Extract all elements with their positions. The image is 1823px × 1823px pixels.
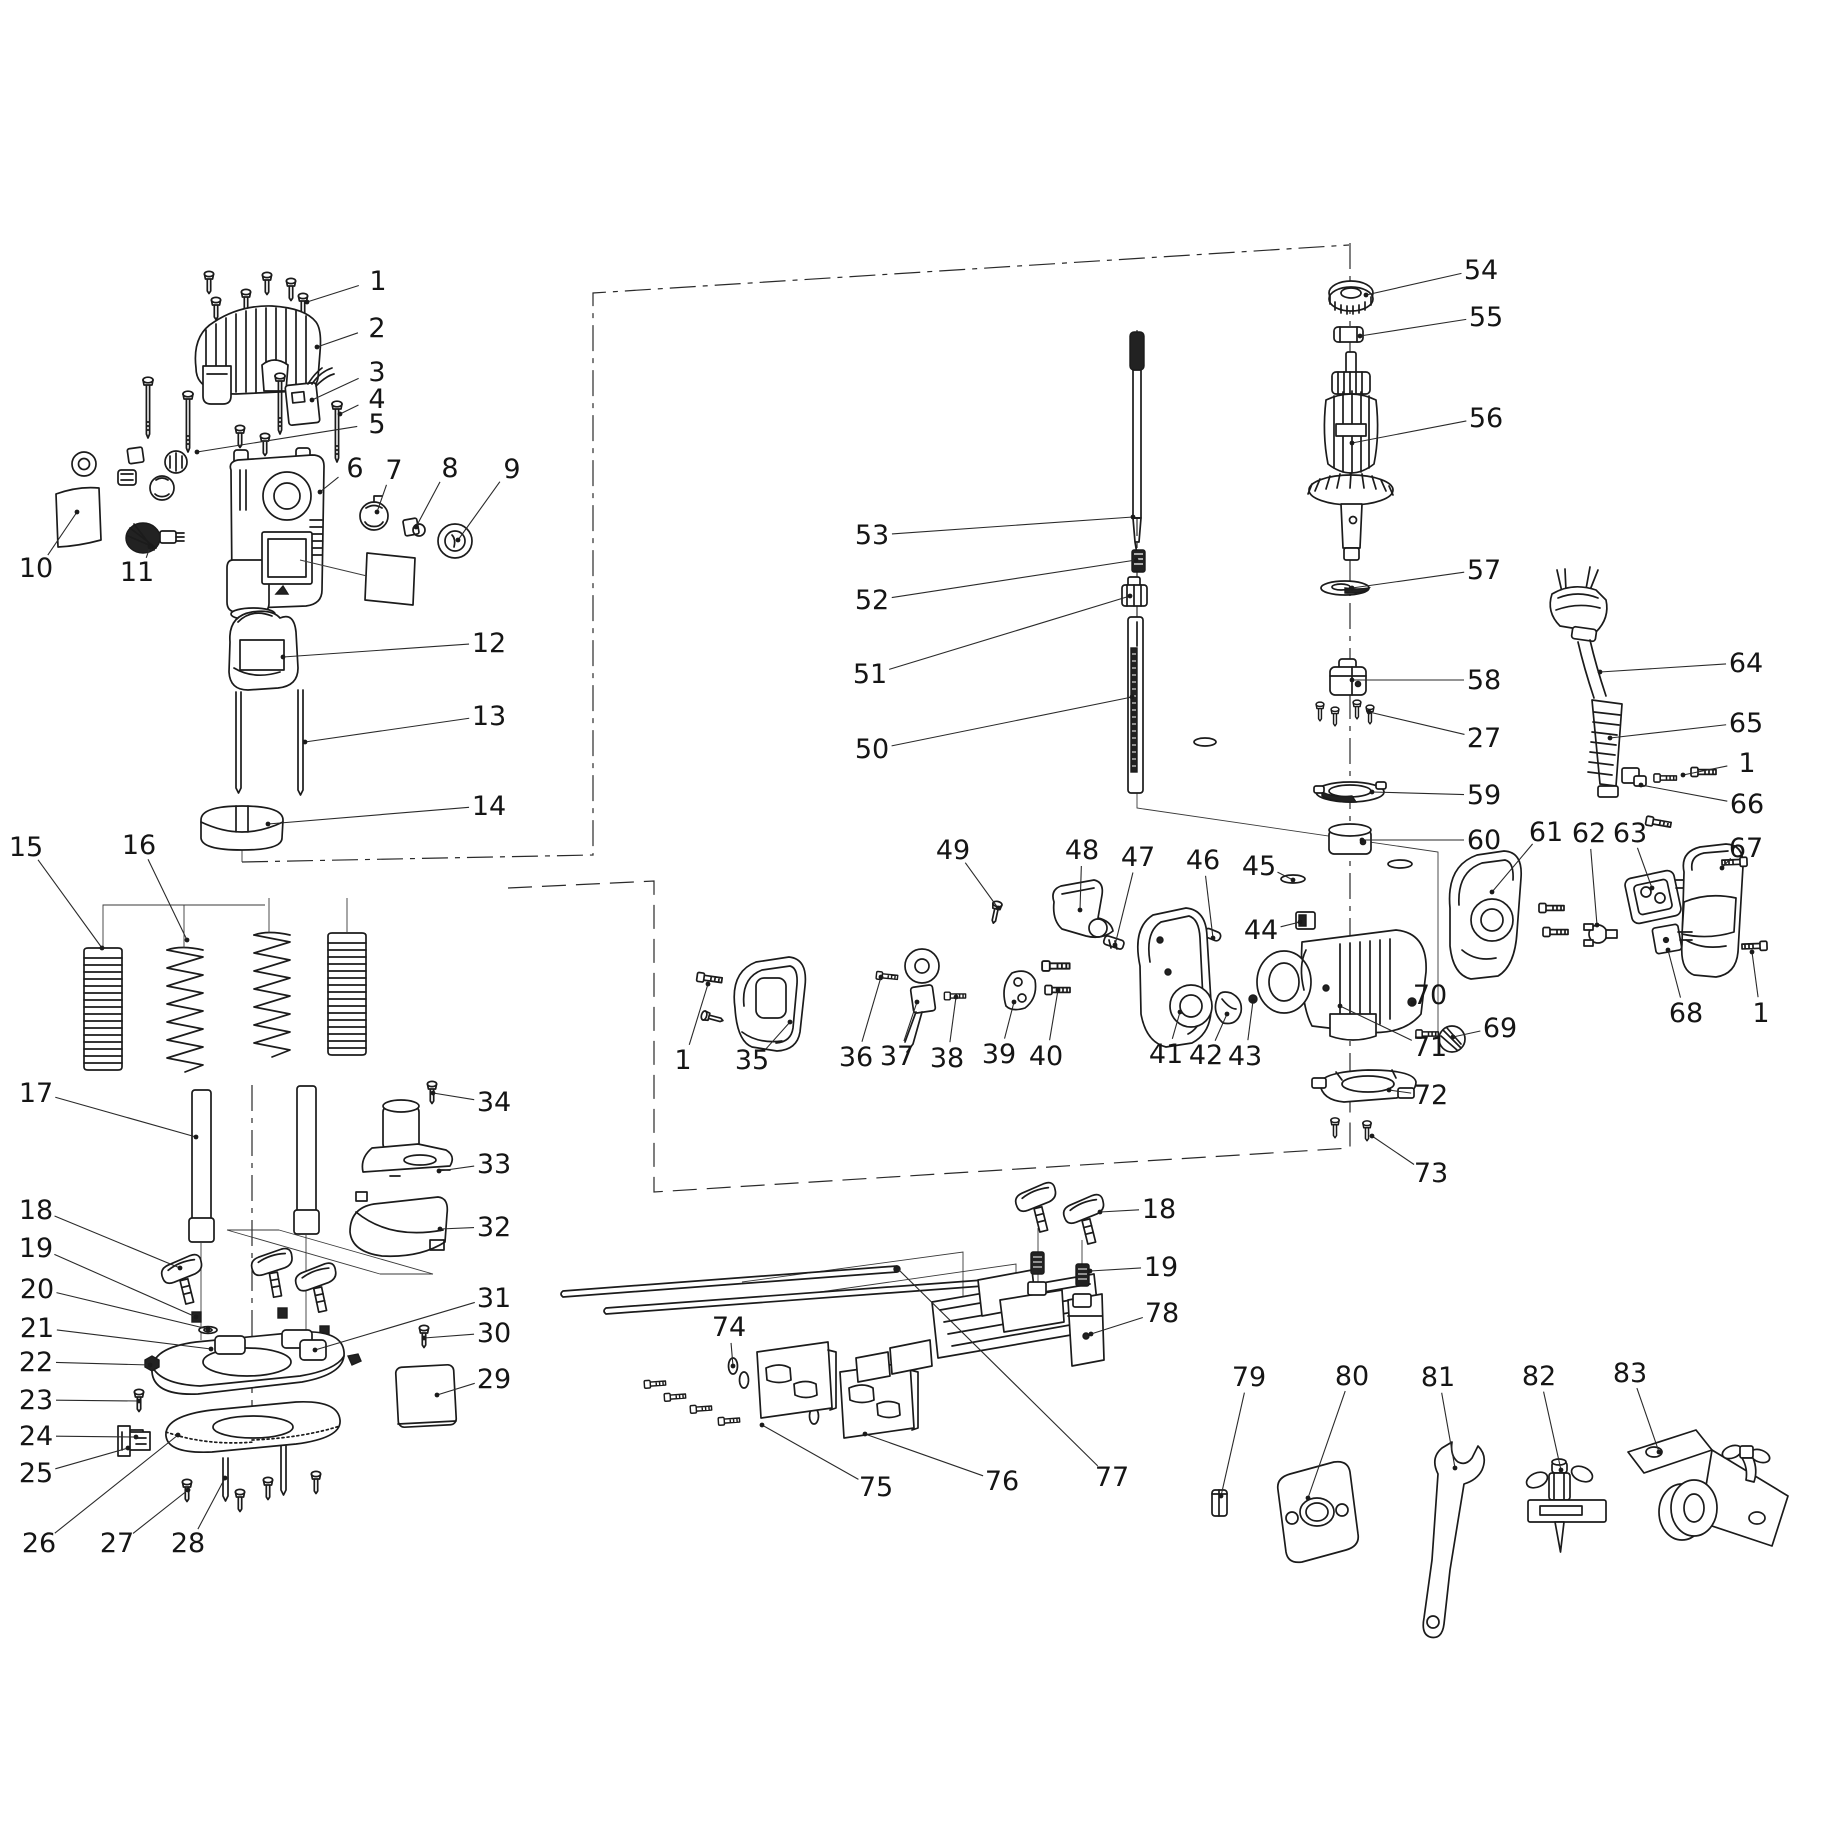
leader-dot: [338, 412, 343, 417]
part-17-columns: [189, 1086, 319, 1340]
leader-line: [197, 426, 357, 452]
leader-dot: [206, 1327, 211, 1332]
callout-60: 60: [1360, 825, 1502, 856]
part-number: 16: [122, 830, 156, 861]
callout-40: 40: [1029, 988, 1063, 1072]
leader-line: [340, 405, 358, 414]
leader-line: [315, 1302, 475, 1350]
leader-dot: [954, 995, 959, 1000]
callout-55: 55: [1358, 302, 1504, 338]
leader-line: [889, 596, 1130, 669]
part-number: 79: [1232, 1362, 1266, 1393]
leader-dot: [788, 1020, 793, 1025]
leader-line: [55, 1216, 180, 1268]
leader-dot: [760, 1423, 765, 1428]
part-83-roller-guide: [1628, 1430, 1788, 1546]
leader-line: [1369, 712, 1464, 734]
part-54-bearing: [1329, 281, 1373, 314]
leader-line: [1050, 990, 1058, 1040]
part-number: 24: [19, 1421, 53, 1452]
part-50-depth-scale: [1128, 617, 1143, 793]
leader-line: [424, 1334, 474, 1338]
leader-line: [1544, 1392, 1561, 1470]
callout-25: 25: [19, 1446, 131, 1489]
part-number: 17: [19, 1078, 53, 1109]
leader-dot: [75, 510, 80, 515]
part-number: 73: [1414, 1158, 1448, 1189]
leader-line: [307, 286, 359, 302]
part-number: 78: [1145, 1298, 1179, 1329]
part-63-switch: [1624, 869, 1688, 924]
leader-line: [458, 482, 500, 540]
part-number: 8: [441, 453, 458, 484]
part-82-circle-guide-pin: [1524, 1459, 1606, 1552]
leader-line: [305, 718, 469, 742]
leader-line: [862, 977, 881, 1042]
callout-32: 32: [438, 1212, 512, 1243]
callout-50: 50: [855, 695, 1135, 765]
leader-dot: [209, 1347, 214, 1352]
leader-line: [892, 697, 1132, 746]
leader-line: [1668, 950, 1681, 998]
leader-line: [55, 1448, 128, 1469]
leader-dot: [1113, 943, 1118, 948]
leader-dot: [310, 398, 315, 403]
leader-dot: [1650, 886, 1655, 891]
leader-dot: [1134, 558, 1139, 563]
leader-line: [1248, 1001, 1253, 1040]
leader-dot: [178, 1266, 183, 1271]
part-number: 33: [477, 1149, 511, 1180]
callout-34: 34: [431, 1087, 512, 1118]
leader-line: [1372, 1136, 1414, 1164]
leader-line: [283, 644, 469, 657]
washer-small-top: [1194, 738, 1216, 746]
callout-82: 82: [1522, 1361, 1564, 1472]
part-number: 58: [1467, 665, 1501, 696]
callout-73: 73: [1370, 1134, 1449, 1189]
leader-dot: [1559, 1468, 1564, 1473]
leader-dot: [435, 1393, 440, 1398]
leader-dot: [1681, 773, 1686, 778]
part-number: 57: [1467, 555, 1501, 586]
leader-dot: [1298, 920, 1303, 925]
part-75-clamp-plate: [757, 1342, 836, 1418]
leader-dot: [148, 545, 153, 550]
leader-line: [56, 1400, 139, 1401]
part-number: 71: [1413, 1032, 1447, 1063]
leader-dot: [305, 300, 310, 305]
leader-line: [1115, 872, 1133, 945]
callout-36: 36: [839, 975, 884, 1073]
leader-dot: [456, 538, 461, 543]
construction-line: [508, 881, 1350, 1192]
leader-dot: [437, 1169, 442, 1174]
leader-dot: [1225, 1012, 1230, 1017]
leader-line: [892, 560, 1136, 598]
callout-57: 57: [1350, 555, 1502, 590]
leader-dot: [318, 490, 323, 495]
part-number: 35: [735, 1045, 769, 1076]
part-number: 23: [19, 1385, 53, 1416]
part-number: 53: [855, 520, 889, 551]
leader-dot: [863, 1432, 868, 1437]
leader-dot: [1306, 1496, 1311, 1501]
leader-dot: [1350, 678, 1355, 683]
part-26-sub-base: [166, 1402, 340, 1452]
leader-line: [1752, 952, 1758, 997]
leader-dot: [1720, 866, 1725, 871]
part-7-bearing-cap: [360, 496, 388, 530]
part-number: 30: [477, 1318, 511, 1349]
leader-line: [1352, 572, 1464, 588]
leader-dot: [706, 982, 711, 987]
part-number: 44: [1244, 915, 1278, 946]
part-number: 54: [1464, 255, 1498, 286]
part-number: 18: [1142, 1194, 1176, 1225]
part-number: 47: [1121, 842, 1155, 873]
callout-70: 70: [1411, 980, 1448, 1011]
callout-27: 27: [1367, 710, 1502, 754]
part-1-screws-left: [696, 972, 724, 1025]
part-number: 80: [1335, 1361, 1369, 1392]
leader-dot: [100, 946, 105, 951]
leader-dot: [1338, 1004, 1343, 1009]
part-73-screws: [1331, 1118, 1371, 1141]
construction-line: [242, 245, 1349, 862]
callout-44: 44: [1244, 915, 1303, 946]
leader-line: [1372, 792, 1464, 795]
leader-dot: [195, 450, 200, 455]
diagram-page: 1234567891011121314151617181920212223242…: [0, 0, 1823, 1823]
leader-line: [55, 1435, 178, 1533]
part-33-dust-hood: [362, 1100, 452, 1176]
callout-14: 14: [266, 791, 507, 826]
part-81-wrench: [1423, 1442, 1484, 1637]
part-56-armature: [1308, 352, 1393, 560]
callout-39: 39: [982, 1000, 1017, 1070]
callout-53: 53: [855, 515, 1136, 551]
part-number: 13: [472, 701, 506, 732]
callout-83: 83: [1613, 1358, 1662, 1454]
part-number: 61: [1529, 817, 1563, 848]
leader-line: [1637, 1388, 1659, 1452]
part-number: 70: [1413, 980, 1447, 1011]
leader-line: [1600, 664, 1726, 672]
callout-12: 12: [281, 628, 507, 659]
callout-54: 54: [1364, 255, 1499, 297]
leader-dot: [1657, 1450, 1662, 1455]
part-number: 51: [853, 659, 887, 690]
part-number: 74: [712, 1312, 746, 1343]
leader-dot: [134, 1435, 139, 1440]
leader-dot: [731, 1364, 736, 1369]
leader-dot: [1130, 695, 1135, 700]
part-number: 46: [1186, 845, 1220, 876]
callout-1: 1: [1750, 950, 1770, 1029]
callout-64: 64: [1598, 648, 1764, 679]
part-32-dust-shoe: [350, 1192, 447, 1256]
leader-line: [148, 859, 187, 940]
part-number: 20: [20, 1274, 54, 1305]
leader-line: [55, 1097, 196, 1137]
callout-7: 7: [375, 455, 403, 514]
part-number: 45: [1242, 851, 1276, 882]
callout-45: 45: [1242, 851, 1296, 882]
part-number: 69: [1483, 1013, 1517, 1044]
leader-line: [312, 378, 359, 400]
callout-59: 59: [1370, 780, 1502, 811]
leader-dot: [176, 1433, 181, 1438]
part-number: 37: [880, 1041, 914, 1072]
part-number: 75: [859, 1472, 893, 1503]
leader-line: [965, 863, 998, 908]
part-57-washer: [1321, 581, 1369, 595]
leader-dot: [1211, 936, 1216, 941]
leader-dot: [1358, 334, 1363, 339]
leader-line: [268, 807, 469, 824]
part-14-clamp-ring: [201, 806, 283, 850]
part-number: 83: [1613, 1358, 1647, 1389]
leader-dot: [996, 906, 1001, 911]
part-number: 77: [1095, 1462, 1129, 1493]
part-72-flange: [1312, 1070, 1416, 1102]
leader-dot: [1595, 923, 1600, 928]
construction-line: [742, 1252, 963, 1312]
part-number: 6: [346, 453, 363, 484]
leader-dot: [1098, 1210, 1103, 1215]
leader-line: [892, 517, 1133, 534]
leader-line: [433, 1093, 474, 1100]
leader-line: [56, 1362, 150, 1365]
leader-dot: [1370, 1134, 1375, 1139]
part-number: 72: [1414, 1080, 1448, 1111]
part-number: 19: [1144, 1252, 1178, 1283]
leader-line: [1591, 849, 1597, 925]
leader-dot: [431, 1091, 436, 1096]
part-number: 5: [368, 409, 385, 440]
callout-2: 2: [315, 313, 386, 349]
leader-line: [198, 1478, 225, 1529]
leader-dot: [1387, 1088, 1392, 1093]
motor-lower-housing: [1257, 930, 1426, 1040]
callout-1: 1: [674, 982, 710, 1076]
leader-dot: [1639, 783, 1644, 788]
leader-line: [1641, 785, 1727, 801]
part-number: 62: [1572, 818, 1606, 849]
part-27-screws-right: [1316, 700, 1374, 726]
leader-dot: [1750, 950, 1755, 955]
leader-line: [1221, 1393, 1244, 1496]
part-number: 38: [930, 1043, 964, 1074]
leader-line: [38, 860, 102, 948]
callout-9: 9: [456, 454, 521, 542]
leader-line: [57, 1330, 211, 1349]
part-9-brush-cap: [438, 524, 472, 558]
leader-dot: [1370, 790, 1375, 795]
callout-15: 15: [9, 832, 105, 950]
part-number: 63: [1613, 818, 1647, 849]
part-number: 25: [19, 1458, 53, 1489]
leader-dot: [1608, 736, 1613, 741]
leader-dot: [185, 938, 190, 943]
leader-dot: [879, 975, 884, 980]
leader-dot: [1251, 999, 1256, 1004]
part-number: 50: [855, 734, 889, 765]
leader-dot: [375, 510, 380, 515]
part-number: 82: [1522, 1361, 1556, 1392]
leader-dot: [1078, 908, 1083, 913]
part-number: 31: [477, 1283, 511, 1314]
leader-dot: [315, 345, 320, 350]
callout-21: 21: [20, 1313, 214, 1351]
leader-line: [133, 1490, 188, 1533]
part-number: 65: [1729, 708, 1763, 739]
part-number: 19: [19, 1233, 53, 1264]
leader-dot: [1490, 890, 1495, 895]
part-29-template-plate: [395, 1365, 456, 1428]
callout-16: 16: [122, 830, 190, 942]
leader-line: [1366, 273, 1461, 295]
leader-dot: [148, 1363, 153, 1368]
part-number: 66: [1730, 789, 1764, 820]
callout-65: 65: [1608, 708, 1764, 740]
leader-dot: [895, 1266, 900, 1271]
part-18-knobs: [159, 1247, 343, 1315]
part-35-handle-half: [734, 957, 805, 1051]
part-number: 59: [1467, 780, 1501, 811]
leader-line: [1090, 1268, 1141, 1271]
leader-dot: [1178, 1010, 1183, 1015]
part-60-collar: [1329, 824, 1371, 854]
leader-dot: [1128, 594, 1133, 599]
part-number: 7: [385, 455, 402, 486]
leader-dot: [1291, 878, 1296, 883]
part-number: 18: [19, 1195, 53, 1226]
leader-dot: [1012, 1000, 1017, 1005]
part-number: 42: [1189, 1040, 1223, 1071]
part-number: 60: [1467, 825, 1501, 856]
callout-62: 62: [1572, 818, 1606, 927]
leader-dot: [1350, 586, 1355, 591]
part-11-adjust-knob: [126, 523, 184, 553]
leader-dot: [1364, 293, 1369, 298]
part-number: 14: [472, 791, 506, 822]
part-6-motor-housing: [227, 448, 324, 620]
part-number: 26: [22, 1528, 56, 1559]
callout-28: 28: [171, 1476, 228, 1559]
part-number: 9: [503, 454, 520, 485]
leader-dot: [1088, 1269, 1093, 1274]
part-number: 27: [100, 1528, 134, 1559]
leader-dot: [1453, 1466, 1458, 1471]
part-13-long-pins: [236, 690, 303, 795]
part-number: 21: [20, 1313, 54, 1344]
part-47-pin: [1103, 935, 1125, 950]
leader-line: [416, 482, 440, 527]
leader-dot: [1219, 1494, 1224, 1499]
leader-line: [1360, 319, 1466, 336]
part-41-43-handle-inner: [1138, 908, 1257, 1047]
leader-dot: [1666, 948, 1671, 953]
part-23-25-stop-parts: [118, 1389, 150, 1456]
part-51-knurled-nut: [1122, 577, 1147, 606]
leader-line: [950, 997, 956, 1042]
part-number: 55: [1469, 302, 1503, 333]
diagram-canvas: 1234567891011121314151617181920212223242…: [0, 0, 1823, 1823]
part-number: 64: [1729, 648, 1763, 679]
callout-23: 23: [19, 1385, 142, 1416]
callout-13: 13: [303, 701, 507, 744]
part-number: 27: [1467, 723, 1501, 754]
part-number: 40: [1029, 1041, 1063, 1072]
callout-52: 52: [855, 558, 1139, 616]
callout-22: 22: [19, 1347, 153, 1378]
callout-66: 66: [1639, 783, 1765, 820]
leader-dot: [266, 822, 271, 827]
part-number: 10: [19, 553, 53, 584]
callout-49: 49: [936, 835, 1001, 910]
leader-line: [317, 333, 358, 347]
leader-dot: [422, 1336, 427, 1341]
leader-dot: [1350, 441, 1355, 446]
callout-19: 19: [1088, 1252, 1179, 1283]
leader-dot: [281, 655, 286, 660]
part-66-cord-clamp: [1622, 768, 1716, 787]
leader-dot: [194, 1135, 199, 1140]
part-number: 15: [9, 832, 43, 863]
part-number: 49: [936, 835, 970, 866]
part-number: 34: [477, 1087, 511, 1118]
part-64-65-power-cord: [1550, 567, 1622, 797]
part-number: 41: [1149, 1039, 1183, 1070]
part-number: 29: [477, 1364, 511, 1395]
part-number: 22: [19, 1347, 53, 1378]
part-number: 1: [1752, 998, 1769, 1029]
part-79-collet-sleeve: [1212, 1490, 1227, 1516]
part-27-28-base-screws: [182, 1446, 320, 1512]
part-15-16-springs: [84, 898, 366, 1072]
part-number: 12: [472, 628, 506, 659]
callout-1: 1: [305, 266, 387, 304]
part-48-49-lock-lever: [989, 880, 1113, 937]
leader-dot: [915, 1000, 920, 1005]
leader-dot: [1131, 515, 1136, 520]
part-12-stator: [229, 611, 298, 690]
leader-dot: [1451, 1035, 1456, 1040]
part-number: 68: [1669, 998, 1703, 1029]
callout-30: 30: [422, 1318, 512, 1349]
part-62-spindle-lock: [1539, 904, 1617, 947]
part-80-guide-bush-plate: [1278, 1462, 1359, 1563]
part-number: 81: [1421, 1362, 1455, 1393]
part-number: 56: [1469, 403, 1503, 434]
callout-17: 17: [19, 1078, 199, 1139]
part-number: 32: [477, 1212, 511, 1243]
part-number: 2: [368, 313, 385, 344]
leader-dot: [223, 1476, 228, 1481]
leader-dot: [186, 1488, 191, 1493]
leader-line: [1100, 1210, 1139, 1212]
parts-artwork: [56, 271, 1788, 1637]
callout-51: 51: [853, 594, 1133, 690]
part-number: 1: [1738, 748, 1755, 779]
part-45-washer-b: [1388, 860, 1412, 868]
part-number: 52: [855, 585, 889, 616]
callout-74: 74: [712, 1312, 746, 1368]
leader-line: [865, 1434, 983, 1476]
part-number: 36: [839, 1042, 873, 1073]
